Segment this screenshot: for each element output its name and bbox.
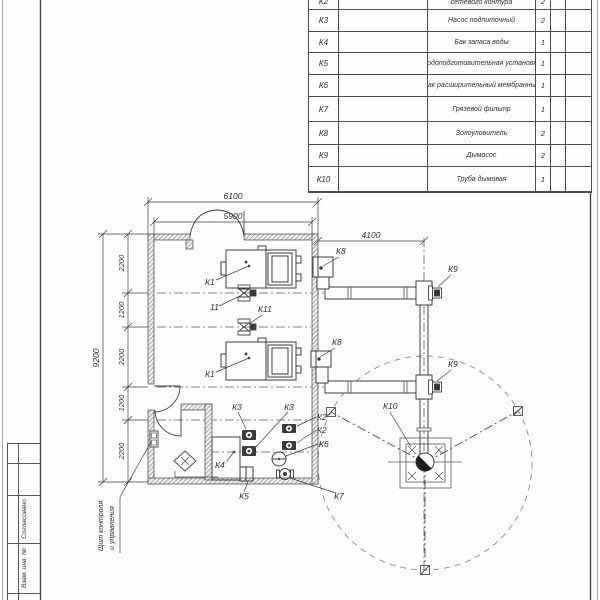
doors	[154, 210, 244, 436]
row-note	[566, 0, 591, 10]
row-extra	[551, 122, 566, 145]
row-designation	[339, 0, 428, 10]
feed-pump-1-label: К3	[232, 402, 242, 412]
smoke-exhauster-2	[429, 380, 442, 394]
row-qty: 1	[536, 97, 551, 122]
row-pos: К3	[309, 10, 339, 32]
row-note	[566, 32, 591, 53]
valve-11-label: 11	[210, 302, 219, 312]
row-pos: К8	[309, 122, 339, 145]
row-note	[566, 53, 591, 75]
row-name: Водоподготовительная установка	[428, 53, 536, 75]
network-pump-2-label: К2	[317, 425, 327, 435]
spec-table: К2 сетевого контура 2 К3 Насос подпиточн…	[308, 0, 592, 193]
boiler-1	[221, 246, 301, 288]
expansion-tank-label: К6	[319, 439, 329, 449]
dim-seg-1: 2200	[117, 254, 126, 273]
row-extra	[551, 32, 566, 53]
row-pos: К5	[309, 53, 339, 75]
dim-seg-3: 2200	[117, 348, 126, 367]
row-extra	[551, 97, 566, 122]
title-block-inv: Взам. инв. №	[21, 548, 28, 588]
partition-door	[155, 410, 181, 436]
row-designation	[339, 10, 428, 32]
dim-9200: 9200	[91, 348, 101, 367]
row-extra	[551, 75, 566, 97]
smoke-exhauster-1-label: К9	[448, 264, 458, 274]
row-qty: 1	[536, 32, 551, 53]
row-note	[566, 75, 591, 97]
guy-anchor	[327, 407, 523, 575]
boiler-2-label: К1	[205, 369, 215, 379]
row-extra	[551, 53, 566, 75]
row-designation	[339, 167, 428, 192]
expansion-tank-k6	[272, 452, 286, 466]
row-note	[566, 167, 591, 192]
row-note	[566, 10, 591, 32]
water-tank-k4	[212, 437, 240, 480]
boiler-2	[221, 338, 301, 380]
row-name: Золоуловитель	[428, 122, 536, 145]
ash-collector-1-label: К8	[336, 246, 346, 256]
row-note	[566, 145, 591, 167]
row-name: Труба дымовая	[428, 167, 536, 192]
row-note	[566, 122, 591, 145]
row-designation	[339, 122, 428, 145]
network-pump-1-label: К2	[317, 412, 327, 422]
row-designation	[339, 97, 428, 122]
dim-4100: 4100	[362, 230, 381, 240]
title-block: Согласовано Взам. инв. №	[7, 443, 40, 600]
boiler-1-label: К1	[205, 277, 215, 287]
network-pump-k2-1	[282, 424, 296, 433]
ash-collector-2-label: К8	[332, 337, 342, 347]
row-qty: 2	[536, 145, 551, 167]
mud-filter-label: К7	[334, 491, 344, 501]
row-name: сетевого контура	[428, 0, 536, 10]
row-name: Насос подпиточный	[428, 10, 536, 32]
smoke-exhauster-1	[429, 286, 442, 300]
row-note	[566, 97, 591, 122]
row-qty: 2	[536, 0, 551, 10]
feed-pump-2-label: К3	[284, 402, 294, 412]
flue-duct-1	[313, 257, 432, 305]
side-door	[154, 386, 180, 412]
row-name: Бак запаса воды	[428, 32, 536, 53]
water-treatment-label: К5	[239, 491, 249, 501]
row-name: Дымосос	[428, 145, 536, 167]
drawing-sheet: Согласовано Взам. инв. №	[0, 0, 600, 600]
control-panel-note-line2: и управления	[109, 506, 116, 550]
row-name: Бак расширительный мембранный	[428, 75, 536, 97]
water-tank-label: К4	[215, 460, 225, 470]
control-panel-note-line1: Щит контроля	[98, 501, 105, 552]
row-qty: 1	[536, 53, 551, 75]
feed-pump-k3-2	[242, 446, 256, 456]
dim-seg-5: 2200	[117, 442, 126, 461]
network-pump-k2-2	[282, 441, 296, 450]
row-designation	[339, 75, 428, 97]
valve-k11-label: К11	[258, 304, 272, 314]
dim-5900: 5900	[224, 211, 243, 221]
feed-pump-k3-1	[242, 430, 256, 440]
control-panel	[150, 431, 158, 447]
row-extra	[551, 145, 566, 167]
row-pos: К2	[309, 0, 339, 10]
row-name: Грязевой фильтр	[428, 97, 536, 122]
row-pos: К4	[309, 32, 339, 53]
dim-seg-4: 1200	[117, 394, 126, 412]
row-designation	[339, 32, 428, 53]
row-qty: 1	[536, 167, 551, 192]
row-pos: К10	[309, 167, 339, 192]
row-extra	[551, 10, 566, 32]
row-qty: 1	[536, 75, 551, 97]
row-extra	[551, 167, 566, 192]
row-pos: К7	[309, 97, 339, 122]
chimney-symbol	[416, 453, 434, 471]
chimney-label: К10	[383, 401, 398, 411]
row-designation	[339, 145, 428, 167]
dim-seg-2: 1200	[117, 301, 126, 319]
title-block-approved: Согласовано	[21, 499, 28, 539]
flue-duct-2	[311, 351, 432, 399]
dim-6100: 6100	[224, 191, 243, 201]
row-pos: К9	[309, 145, 339, 167]
row-designation	[339, 53, 428, 75]
row-qty: 2	[536, 10, 551, 32]
row-extra	[551, 0, 566, 10]
smoke-exhauster-2-label: К9	[448, 359, 458, 369]
row-pos: К6	[309, 75, 339, 97]
row-qty: 2	[536, 122, 551, 145]
